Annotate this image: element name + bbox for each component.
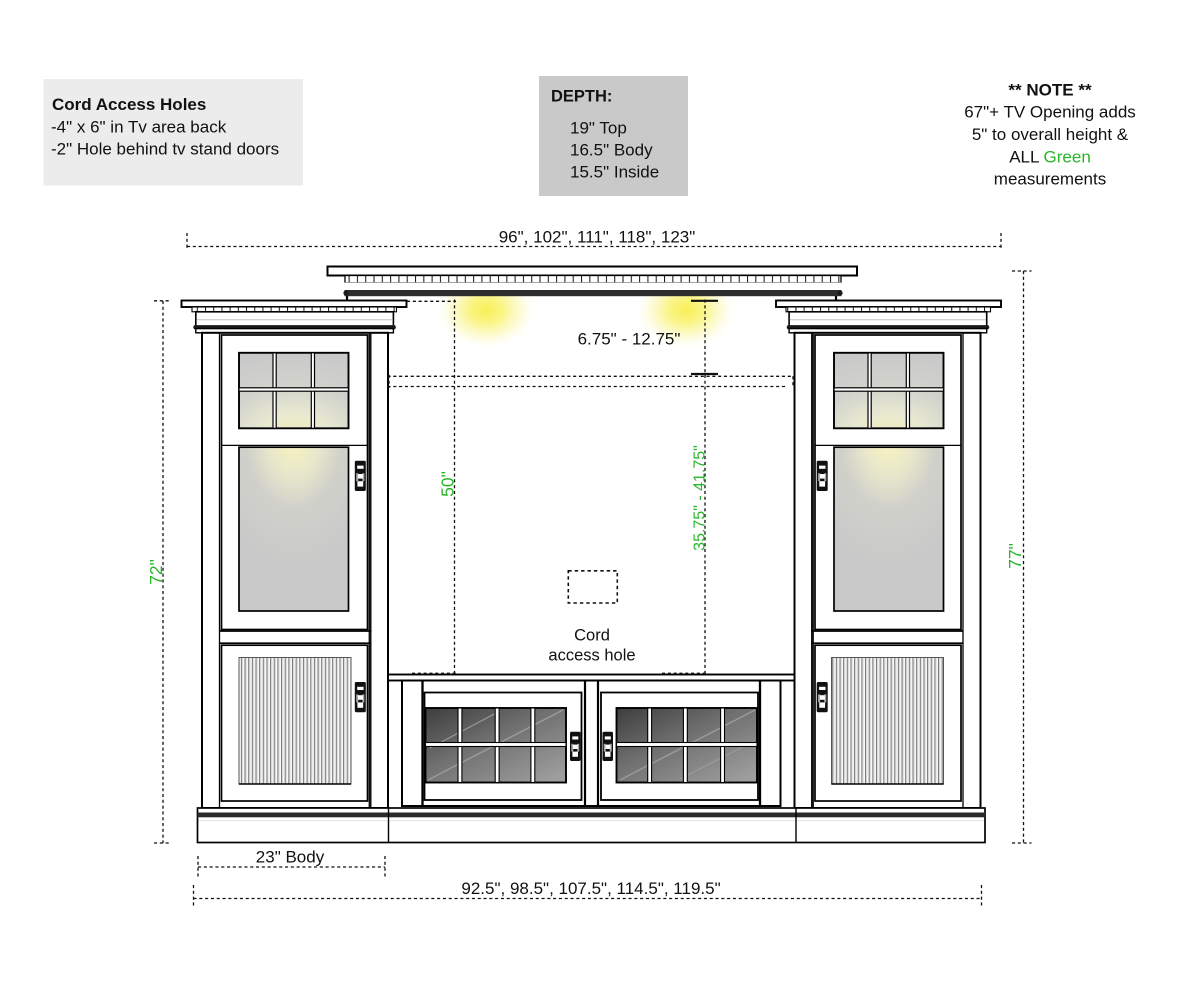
svg-text:6.75" - 12.75": 6.75" - 12.75" [578, 330, 681, 349]
svg-text:Cord: Cord [574, 627, 610, 645]
svg-text:92.5", 98.5", 107.5", 114.5",: 92.5", 98.5", 107.5", 114.5", 119.5" [461, 879, 720, 898]
svg-text:67"+ TV Opening adds: 67"+ TV Opening adds [964, 103, 1136, 122]
svg-text:Cord Access Holes: Cord Access Holes [52, 95, 206, 114]
svg-text:72": 72" [146, 559, 166, 585]
svg-text:DEPTH:: DEPTH: [551, 88, 612, 106]
svg-text:23" Body: 23" Body [256, 848, 325, 867]
svg-text:-4" x 6" in Tv area back: -4" x 6" in Tv area back [51, 118, 227, 137]
svg-text:77": 77" [1005, 543, 1025, 569]
svg-text:96", 102", 111", 118", 123": 96", 102", 111", 118", 123" [499, 228, 696, 247]
svg-text:** NOTE **: ** NOTE ** [1008, 81, 1092, 100]
svg-text:19" Top: 19" Top [570, 119, 627, 138]
svg-text:access hole: access hole [548, 647, 635, 665]
svg-text:-2" Hole behind tv stand doors: -2" Hole behind tv stand doors [51, 140, 279, 159]
svg-text:16.5" Body: 16.5" Body [570, 141, 653, 160]
svg-text:35.75" - 41.75": 35.75" - 41.75" [692, 445, 709, 551]
svg-text:15.5" Inside: 15.5" Inside [570, 163, 659, 182]
svg-text:measurements: measurements [994, 170, 1106, 189]
svg-text:ALL Green: ALL Green [1009, 148, 1091, 167]
svg-text:50": 50" [438, 471, 458, 497]
svg-text:5" to overall height &: 5" to overall height & [972, 125, 1129, 144]
